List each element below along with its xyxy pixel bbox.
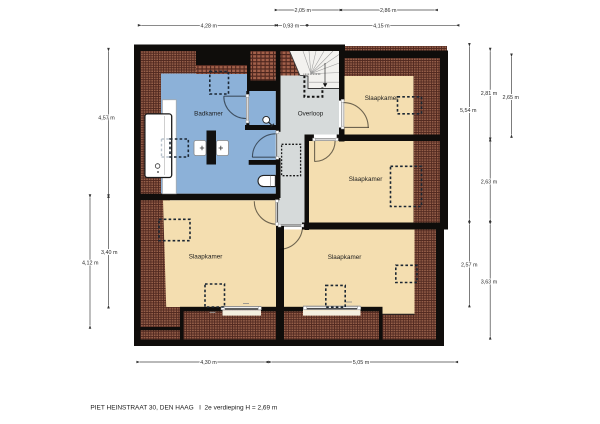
svg-text:2,81 m: 2,81 m bbox=[481, 91, 498, 97]
svg-text:4,28 m: 4,28 m bbox=[200, 23, 217, 29]
svg-text:0,93 m: 0,93 m bbox=[283, 23, 300, 29]
svg-text:2,63 m: 2,63 m bbox=[481, 180, 498, 186]
svg-text:Slaapkamer: Slaapkamer bbox=[189, 254, 223, 261]
svg-text:4,30 m: 4,30 m bbox=[200, 360, 217, 366]
svg-text:Slaapkamer: Slaapkamer bbox=[349, 176, 383, 183]
svg-text:Badkamer: Badkamer bbox=[194, 111, 223, 118]
svg-text:Slaapkamer: Slaapkamer bbox=[328, 254, 362, 261]
svg-text:2,05 m: 2,05 m bbox=[295, 8, 312, 14]
svg-text:2,86 m: 2,86 m bbox=[380, 8, 397, 14]
svg-text:2,65 m: 2,65 m bbox=[502, 95, 519, 101]
svg-text:5,05 m: 5,05 m bbox=[353, 360, 370, 366]
svg-text:Overloop: Overloop bbox=[298, 111, 324, 118]
svg-text:4,57 m: 4,57 m bbox=[98, 116, 115, 122]
svg-text:5,54 m: 5,54 m bbox=[460, 108, 477, 114]
svg-text:2,57 m: 2,57 m bbox=[461, 262, 478, 268]
svg-text:PIET HEINSTRAAT 30, DEN HAAG: PIET HEINSTRAAT 30, DEN HAAG I 2e verdie… bbox=[90, 405, 277, 412]
svg-text:Slaapkamer: Slaapkamer bbox=[365, 95, 399, 102]
svg-text:3,63 m: 3,63 m bbox=[481, 279, 498, 285]
svg-text:4,15 m: 4,15 m bbox=[373, 23, 390, 29]
svg-text:4,12 m: 4,12 m bbox=[82, 261, 99, 267]
svg-text:3,40 m: 3,40 m bbox=[101, 250, 118, 256]
